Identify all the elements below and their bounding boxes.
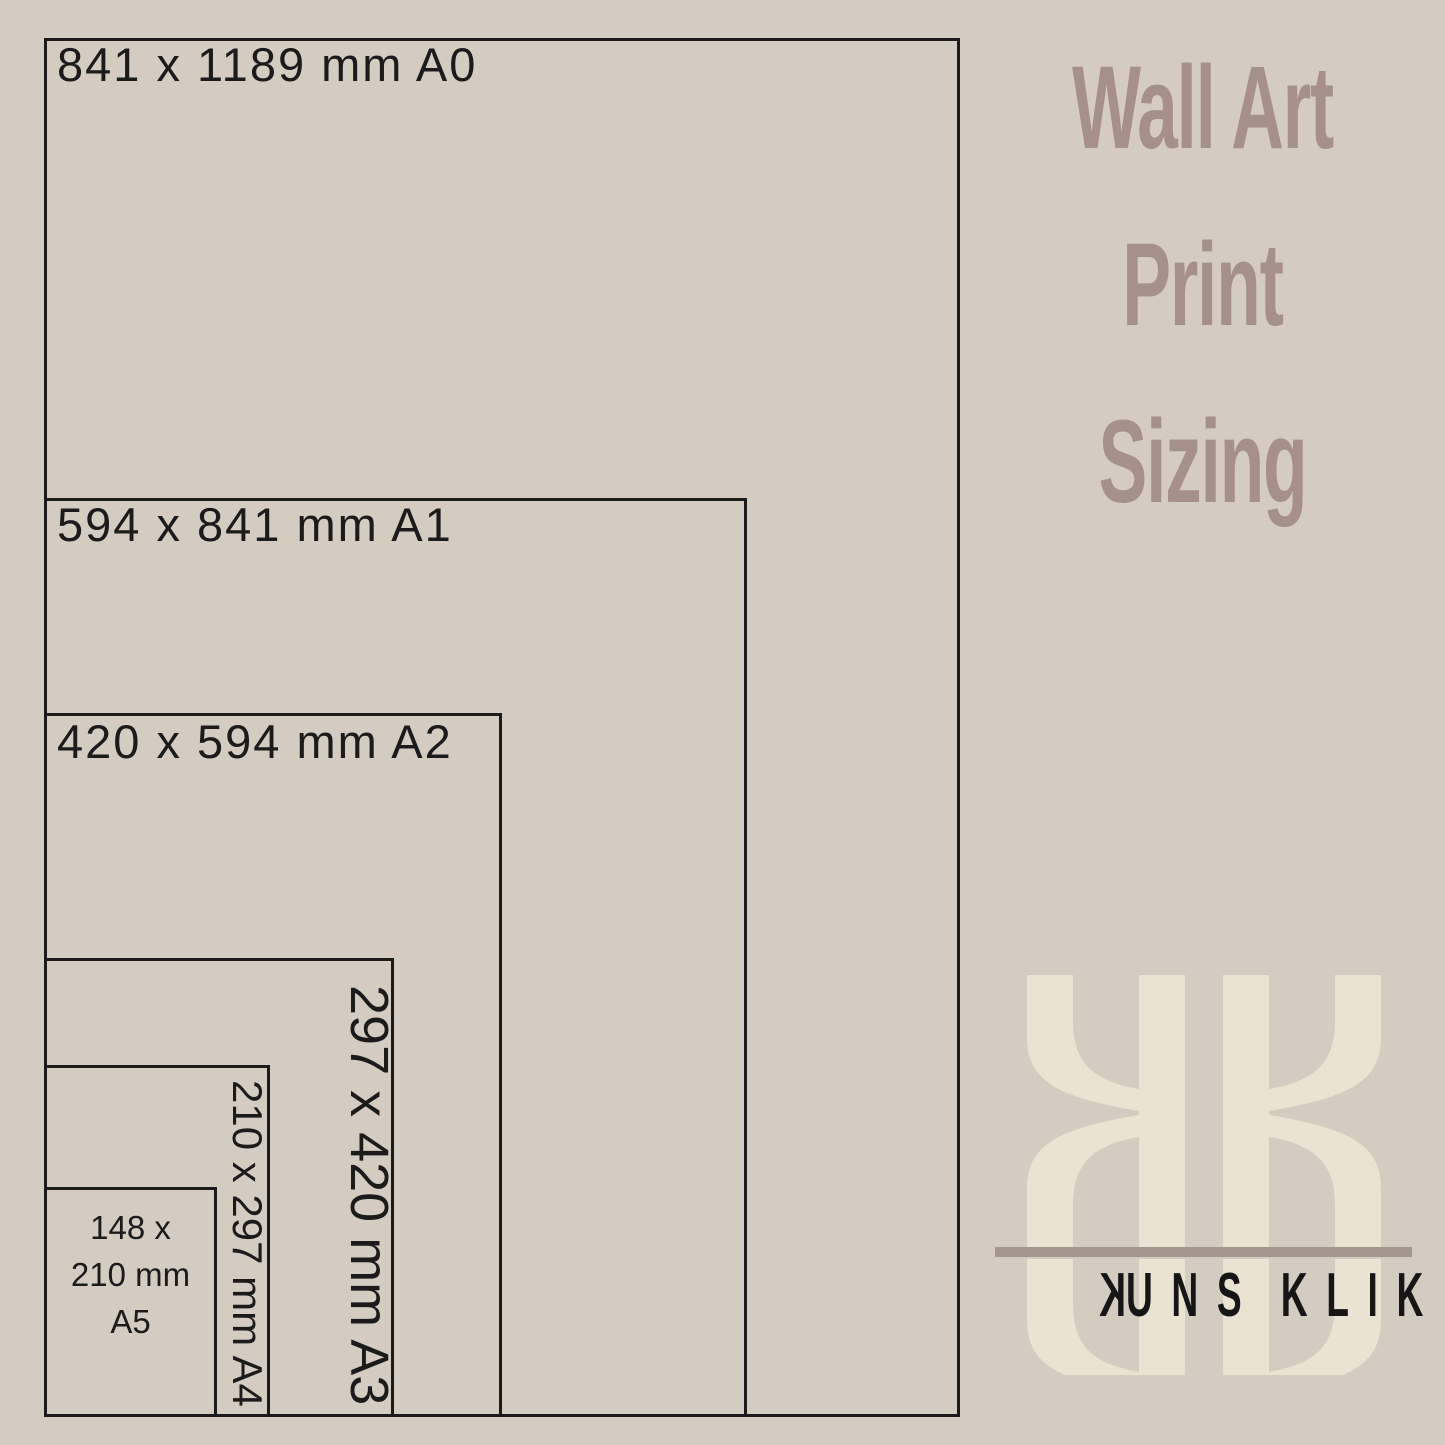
size-label-a1: 594 x 841 mm A1 [57, 501, 453, 548]
brand-name: KUNSKLIK [960, 1261, 1445, 1331]
title-line-3: Sizing [1052, 374, 1353, 551]
kk-monogram [1027, 975, 1381, 1250]
size-label-a3: 297 x 420 mm A3 [342, 985, 396, 1405]
brand-uns: UNS [1126, 1261, 1260, 1330]
brand-klik: KLIK [1281, 1261, 1442, 1330]
size-label-a0: 841 x 1189 mm A0 [57, 41, 477, 88]
title-line-1: Wall Art [1052, 20, 1353, 197]
size-label-a5: 148 x 210 mm A5 [47, 1204, 214, 1345]
title-line-2: Print [1052, 197, 1353, 374]
brand-text: KUNSKLIK [1080, 1261, 1441, 1331]
poster: 841 x 1189 mm A0 594 x 841 mm A1 420 x 5… [0, 0, 1445, 1445]
size-label-a2: 420 x 594 mm A2 [57, 718, 453, 765]
logo-divider-line [995, 1247, 1412, 1257]
mirrored-k-letter: K [1080, 1261, 1125, 1331]
page-title: Wall Art Print Sizing [960, 20, 1445, 551]
size-label-a4: 210 x 297 mm A4 [226, 1080, 268, 1407]
